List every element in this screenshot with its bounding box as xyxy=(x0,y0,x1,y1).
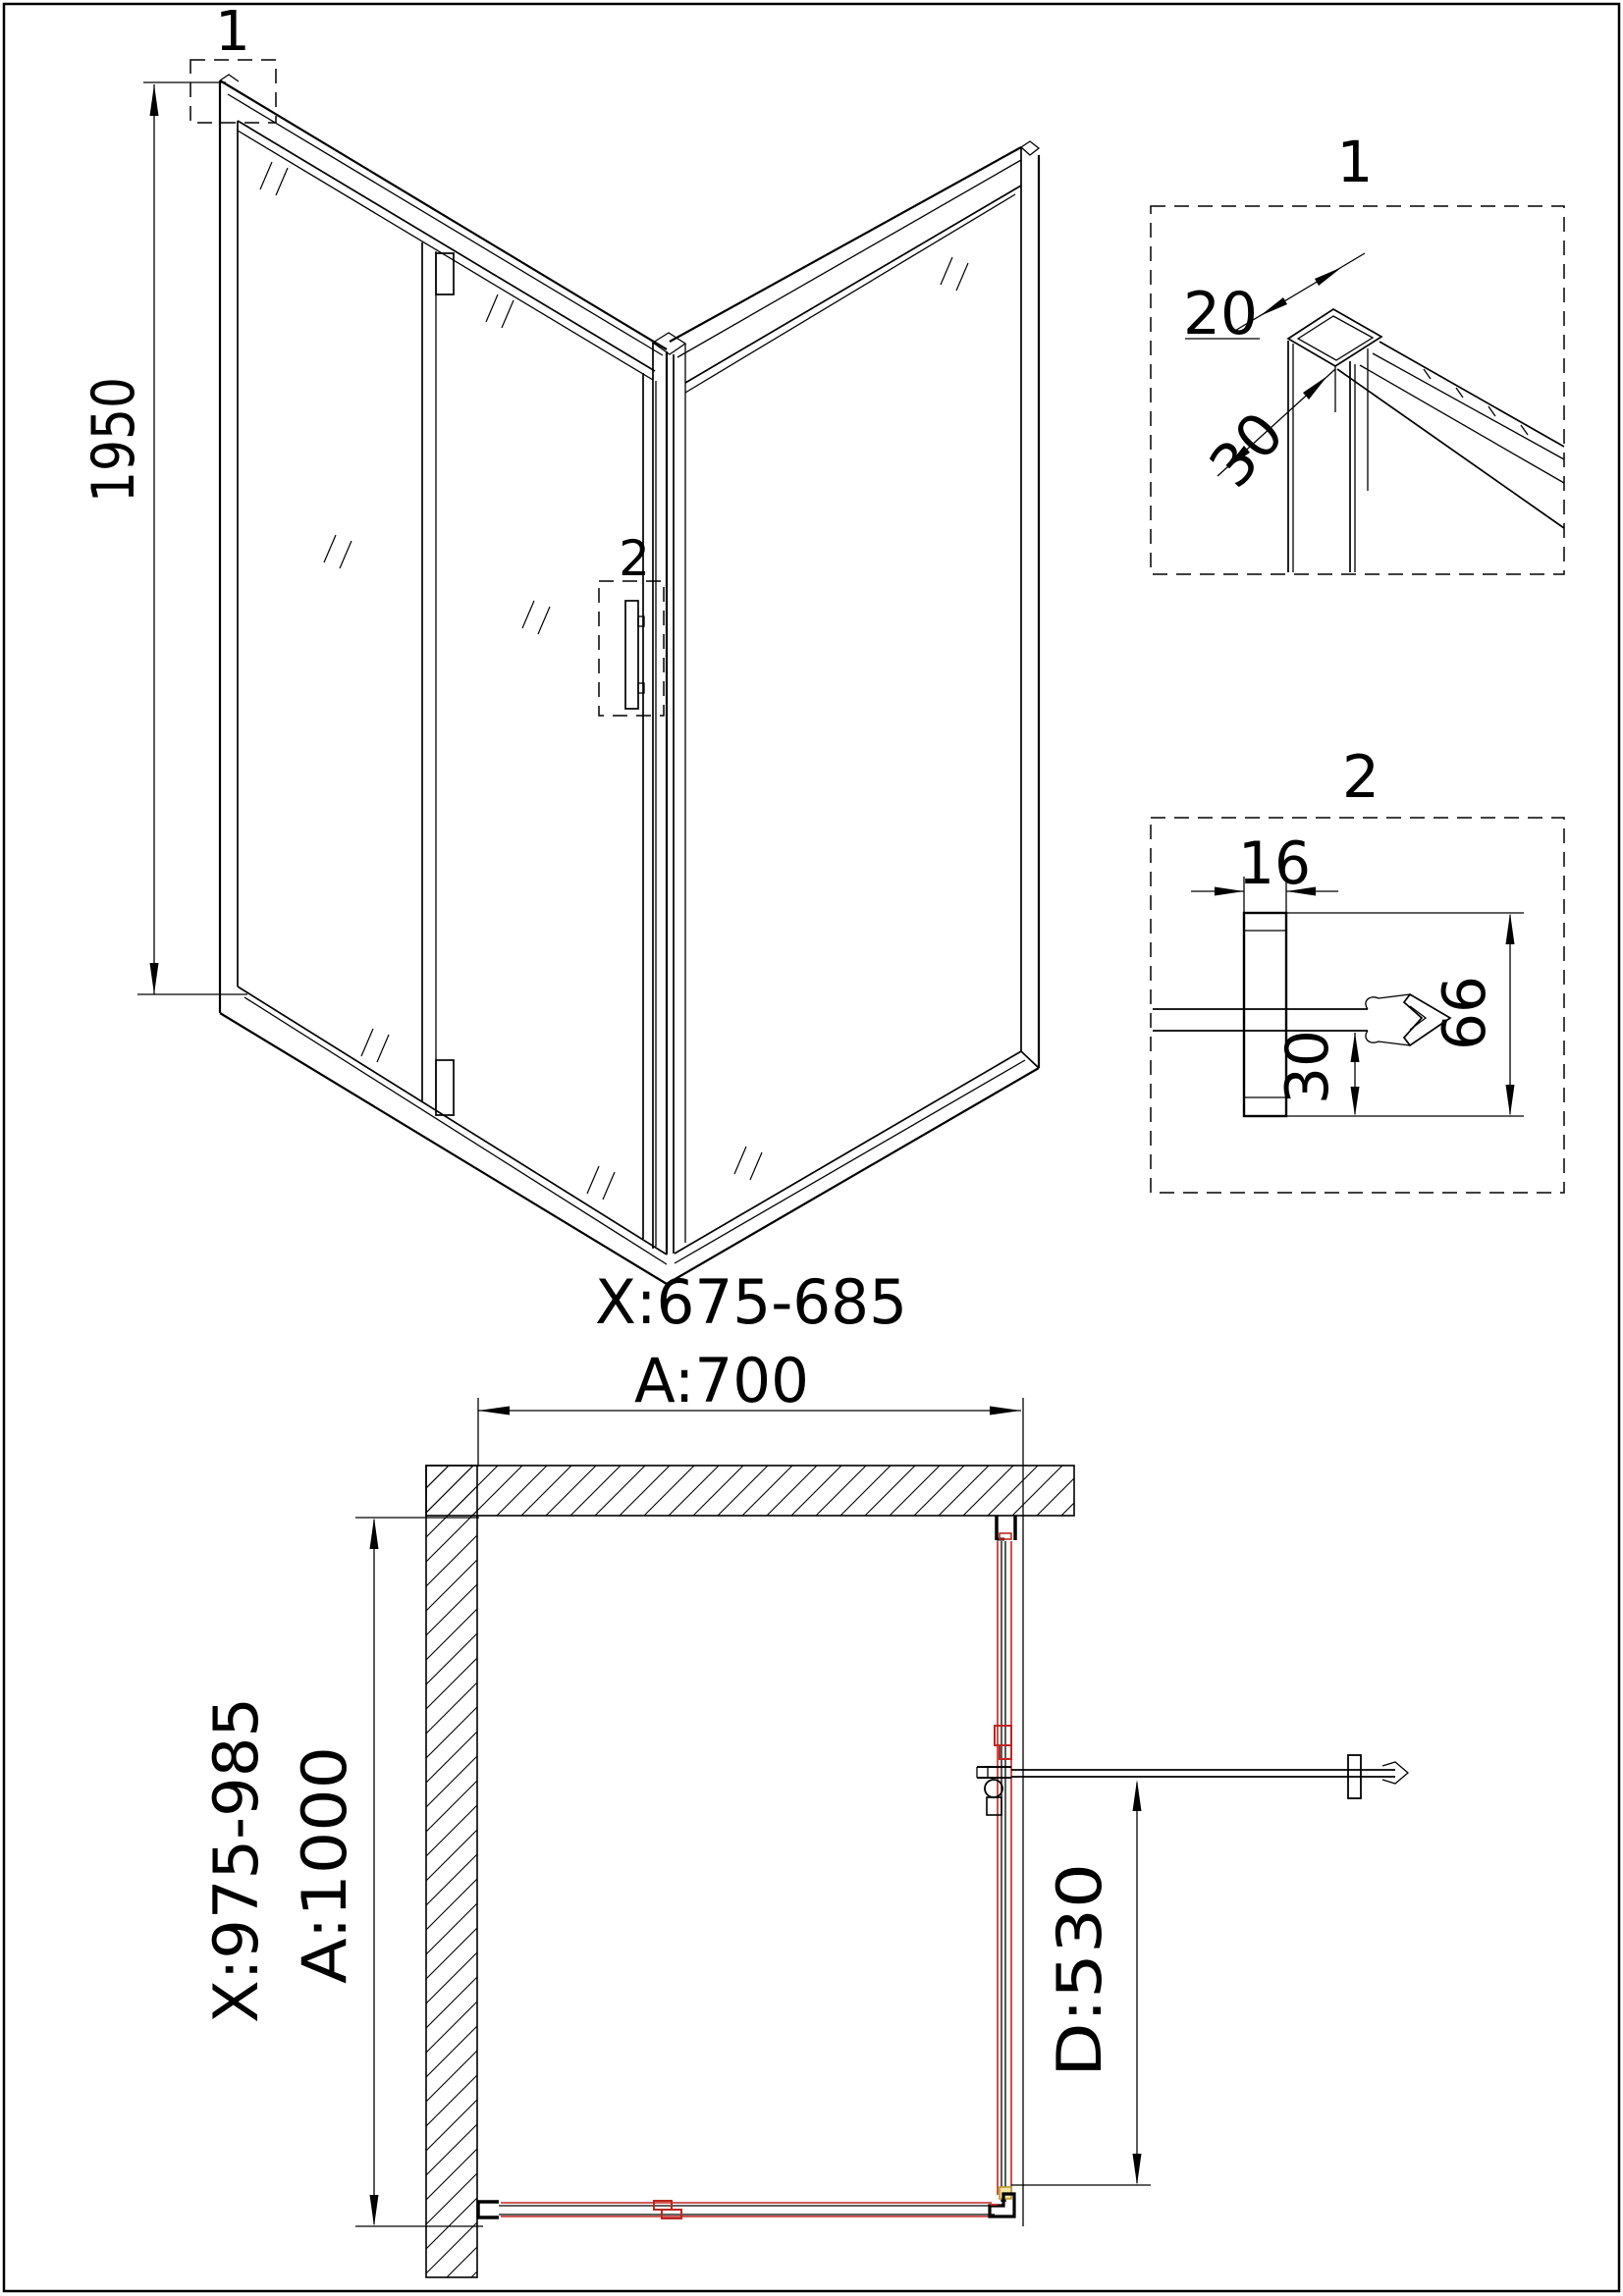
plan-dim-door: D:530 xyxy=(1011,1780,1151,2185)
door-handle xyxy=(625,601,638,709)
plan-dim-depth-range-label: X:975-985 xyxy=(200,1697,272,2023)
dim-width-range-label: X:675-685 xyxy=(595,1266,907,1338)
detail-2-view: 2 16 xyxy=(1151,743,1564,1193)
isometric-view: 1950 1 xyxy=(80,0,1039,1338)
side-panel xyxy=(667,141,1039,1284)
detail-2-dim-16: 16 xyxy=(1191,829,1338,913)
plan-dim-door-label: D:530 xyxy=(1044,1863,1115,2077)
door-hinge-bottom xyxy=(436,1060,454,1115)
door-hinge-top xyxy=(436,253,454,294)
detail-1-view: 1 20 xyxy=(1151,129,1564,574)
detail-2-label: 2 xyxy=(1342,743,1380,812)
detail-2-box xyxy=(1151,818,1564,1193)
plan-right-panel xyxy=(995,1516,1015,2202)
detail-1-dim-30-label: 30 xyxy=(1197,400,1298,501)
plan-bottom-panel xyxy=(478,2187,1014,2218)
detail-1-label: 1 xyxy=(1337,129,1374,195)
detail-2-dim-30: 30 xyxy=(1273,1030,1360,1116)
front-panel xyxy=(220,75,667,1284)
detail-2-dim-16-label: 16 xyxy=(1238,829,1311,898)
detail-1-box xyxy=(1151,206,1564,574)
detail-1-dim-20: 20 xyxy=(1183,253,1365,348)
technical-drawing: 1950 1 xyxy=(0,0,1623,2296)
detail-1-rail xyxy=(1337,342,1564,528)
detail-marker-2-label: 2 xyxy=(619,530,650,587)
detail-1-dim-30: 30 xyxy=(1197,369,1335,501)
detail-1-profile xyxy=(1288,309,1381,572)
door-panel xyxy=(422,242,656,1247)
detail-2-dim-30-label: 30 xyxy=(1273,1030,1342,1104)
plan-door-pivot xyxy=(985,1780,1002,1797)
dim-height-1950: 1950 xyxy=(80,82,247,994)
corner-post xyxy=(653,333,685,1255)
dim-height-label: 1950 xyxy=(80,377,148,503)
plan-view: A:700 xyxy=(200,1345,1408,2277)
plan-wall-top xyxy=(426,1466,1074,1516)
plan-corner-bracket xyxy=(990,2187,1014,2216)
plan-dim-width-label: A:700 xyxy=(634,1345,809,1416)
detail-marker-1-box xyxy=(190,60,276,123)
detail-2-dim-66-label: 66 xyxy=(1431,976,1499,1050)
plan-door-seal-tip xyxy=(1382,1762,1408,1784)
drawing-sheet: 1950 1 xyxy=(0,0,1623,2296)
detail-marker-1-label: 1 xyxy=(215,0,250,64)
plan-dim-depth-label: A:1000 xyxy=(289,1746,360,1984)
plan-wall-left xyxy=(426,1466,477,2277)
plan-door xyxy=(977,1755,1408,1815)
